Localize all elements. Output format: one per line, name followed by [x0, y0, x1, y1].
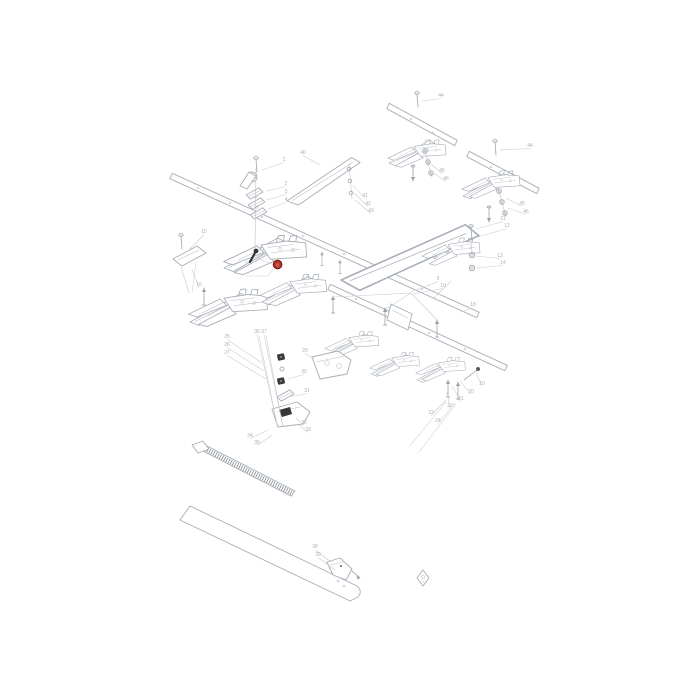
part-callout[interactable]: 39 [315, 552, 321, 558]
part-callout[interactable]: 42 [365, 201, 371, 207]
part-callout[interactable]: 35 [254, 440, 260, 446]
guard-assembly-left [220, 230, 309, 278]
knife-section-top [280, 156, 366, 208]
clip-stack [240, 157, 268, 250]
part-callout[interactable]: 10 [440, 283, 446, 289]
part-callout[interactable]: 4 [285, 197, 288, 203]
callout-leader [227, 348, 264, 372]
callout-leader [227, 340, 262, 364]
callout-leader [227, 356, 266, 380]
part-callout[interactable]: 1 [283, 157, 286, 163]
guard-assembly-top [386, 136, 448, 170]
guard-assembly-row-2 [368, 349, 421, 378]
part-callout[interactable]: 11 [500, 216, 505, 222]
part-callout[interactable]: 24 [435, 418, 441, 424]
part-callout[interactable]: 23 [428, 410, 434, 416]
guard-assembly-lower-left [186, 284, 270, 330]
part-callout[interactable]: 31 [304, 388, 310, 394]
callout-leader [476, 222, 503, 230]
part-callout[interactable]: 33 [305, 427, 311, 433]
bar-end-head [327, 558, 352, 580]
part-callout[interactable]: 34 [247, 433, 253, 439]
callout-leader [266, 187, 286, 192]
part-callout[interactable]: 36 [254, 329, 260, 335]
knife-head-assembly [272, 351, 351, 427]
rail-segment-top [387, 103, 457, 145]
part-callout[interactable]: 45 [439, 168, 445, 174]
parts-diagram: 1234404142434445464445461112131415169101… [0, 0, 700, 700]
part-callout[interactable]: 13 [497, 253, 503, 259]
diagram-canvas: 1234404142434445464445461112131415169101… [0, 0, 700, 700]
part-callout[interactable]: 22 [447, 403, 453, 409]
hardware-top-assembly [411, 92, 433, 181]
callout-leader [267, 195, 286, 201]
callout-leader [477, 266, 503, 269]
clamp-plate [312, 351, 351, 379]
part-callout[interactable]: 2 [285, 181, 288, 187]
part-callout[interactable]: 14 [500, 260, 506, 266]
callout-leader [462, 308, 473, 313]
part-callout[interactable]: 26 [224, 342, 230, 348]
part-callout[interactable]: 46 [443, 176, 449, 182]
part-callout[interactable]: 19 [479, 381, 485, 387]
part-callout[interactable]: 12 [504, 223, 510, 229]
cutter-bar [180, 506, 360, 601]
serrated-strip [192, 441, 295, 496]
part-callout[interactable]: 44 [438, 93, 444, 99]
callout-leader [478, 229, 507, 238]
part-callout[interactable]: 16 [196, 282, 202, 288]
part-callout[interactable]: 9 [437, 276, 440, 282]
part-callout[interactable]: 41 [362, 193, 368, 199]
part-callout[interactable]: 40 [300, 150, 306, 156]
guard-assembly-top-right [460, 167, 522, 201]
callout-leader [305, 354, 314, 360]
part-callout[interactable]: 43 [368, 208, 374, 214]
part-callout[interactable]: 38 [312, 544, 318, 550]
part-callout[interactable]: 21 [458, 396, 464, 402]
guard-assembly-row-3 [414, 354, 467, 384]
part-callout[interactable]: 46 [523, 209, 529, 215]
callout-leader [268, 203, 286, 210]
part-callout[interactable]: 18 [470, 302, 476, 308]
guard-assembly-mid [258, 270, 329, 309]
part-callout[interactable]: 3 [285, 189, 288, 195]
screw-head [476, 367, 480, 371]
diamond-part [417, 570, 429, 586]
part-callout[interactable]: 32 [301, 420, 307, 426]
part-callout[interactable]: 45 [519, 201, 525, 207]
part-callout[interactable]: 15 [201, 229, 207, 235]
splice-plate [387, 304, 412, 330]
part-callout[interactable]: 30 [301, 369, 307, 375]
callout-leader [500, 149, 530, 151]
callout-leader [262, 163, 284, 171]
part-callout[interactable]: 44 [527, 143, 533, 149]
part-callout[interactable]: 25 [224, 334, 230, 340]
part-callout[interactable]: 37 [261, 329, 267, 335]
callout-leader [303, 156, 320, 166]
part-callout[interactable]: 29 [302, 348, 308, 354]
part-callout[interactable]: 27 [224, 350, 230, 356]
callout-leader [288, 375, 304, 380]
part-callout[interactable]: 20 [468, 389, 474, 395]
highlighted-callout[interactable]: 8 [273, 260, 282, 269]
